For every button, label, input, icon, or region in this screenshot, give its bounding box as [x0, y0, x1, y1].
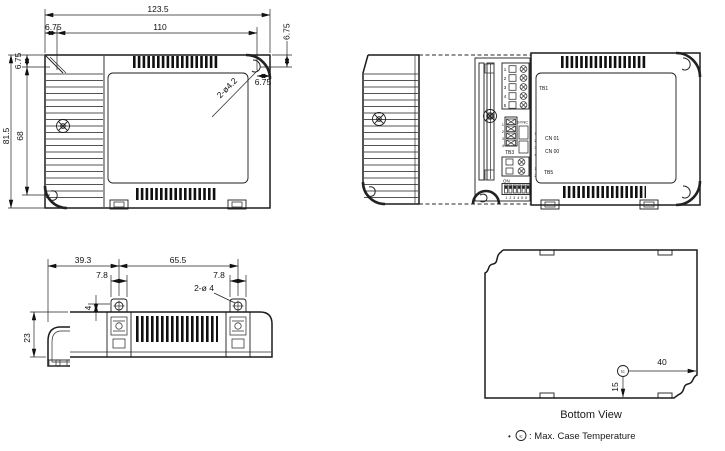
mechanical-drawing-canvas: 123.5 6.75 110 6.75 6.75 6.75	[0, 0, 725, 451]
keyhole-slot-top-right	[676, 53, 700, 77]
dim-label: 6.75	[282, 23, 292, 40]
pin-number: 3	[502, 136, 505, 141]
cn00-label: CN 00	[545, 149, 559, 155]
case-outline	[45, 55, 270, 208]
tc-marker-label: tc	[621, 369, 625, 374]
cn01-label: CN 01	[545, 136, 559, 142]
keyhole-slot-bottom-left	[45, 186, 67, 208]
dim-label: 2-ø 4	[194, 283, 214, 293]
pin-number: 4	[504, 94, 507, 99]
rail	[479, 63, 484, 180]
tb1-label: TB1	[539, 86, 548, 92]
dip-switch: ON 1 2 3 4 5 6	[502, 179, 530, 201]
dimension-tc-right: 40	[629, 357, 696, 371]
dimension-hole-callout: 2-ø 4	[194, 283, 235, 303]
pin-number: 2	[534, 173, 537, 178]
dim-label: 7.8	[96, 270, 108, 280]
screw-icon	[484, 110, 497, 123]
top-view: 123.5 6.75 110 6.75 6.75 6.75	[1, 4, 292, 209]
sync-label: SYNC	[517, 120, 528, 125]
pin-number: 5	[504, 103, 507, 108]
keyhole-slot-bottom-right	[676, 181, 700, 205]
dim-label: 68	[15, 131, 25, 141]
tb5-label: TB5	[544, 170, 553, 176]
connector-tb3: 1 2 3 4 TB3	[502, 117, 517, 156]
bottom-view-panel: tc 40 15 Bottom View	[485, 250, 697, 421]
dim-label: 7.8	[213, 270, 225, 280]
pin-number: 3	[534, 145, 537, 150]
dimension-right-top-offset: 6.75	[260, 23, 292, 67]
pin-number: 1	[534, 166, 537, 171]
side-view: 39.3 65.5 7.8 7.8 4 2-ø 4	[22, 255, 272, 366]
pin-number: 1	[502, 122, 505, 127]
footnote: • tc : Max. Case Temperature	[508, 431, 635, 443]
screw-icon	[373, 113, 386, 126]
connector-sync: SYNC	[517, 120, 528, 154]
bottom-view-caption: Bottom View	[560, 409, 622, 421]
pin-number: 2	[502, 129, 505, 134]
dimension-hole-callout: 2-ø4.2	[212, 70, 258, 117]
pin-number: 4	[534, 152, 537, 157]
case-outline	[531, 53, 700, 205]
dim-label: 123.5	[147, 4, 169, 14]
mounting-bracket-left	[107, 299, 131, 357]
note-text: : Max. Case Temperature	[529, 431, 635, 442]
dim-label: 110	[153, 22, 167, 32]
fin-block-outline	[363, 55, 419, 204]
pin-number: 3	[504, 85, 507, 90]
dim-label: 65.5	[170, 255, 187, 265]
heatsink-fins	[46, 74, 103, 198]
dimension-right-offset: 6.75	[255, 76, 272, 87]
open-cover-view: 1 2 3 4 5 1 2 3 4 TB3 SYNC	[363, 53, 700, 209]
terminal-block-output	[502, 157, 529, 176]
dim-label: 23	[22, 333, 32, 343]
dimension-hole-height: 4	[84, 295, 110, 321]
dip-numbers: 1 2 3 4 5 6	[505, 196, 527, 200]
dim-label: 81.5	[1, 127, 11, 144]
dim-label: 6.75	[45, 22, 62, 32]
dim-label: 40	[657, 357, 667, 367]
terminal-block-tb1: 1 2 3 4 5	[502, 63, 529, 109]
bottom-outline	[485, 250, 697, 398]
dimension-height: 23	[22, 312, 68, 357]
dip-on-label: ON	[503, 179, 510, 184]
pin-number: 2	[504, 76, 507, 81]
dimension-tab-left: 7.8	[96, 270, 127, 297]
mounting-hole-icon	[233, 301, 244, 312]
dim-label: 15	[610, 382, 620, 392]
pin-number: 1	[534, 131, 537, 136]
dim-label: 39.3	[75, 255, 92, 265]
note-bullet: •	[508, 432, 511, 441]
pin-number: 2	[534, 138, 537, 143]
dim-label: 2-ø4.2	[215, 75, 240, 100]
heatsink-fins	[364, 74, 418, 198]
keyhole-slot-bottom	[473, 191, 499, 204]
keyhole-slot	[363, 182, 385, 204]
pin-number: 1	[504, 67, 507, 72]
dimension-tab-right: 7.8	[213, 270, 246, 297]
dim-label: 4	[84, 305, 93, 310]
mounting-hole-icon	[114, 301, 125, 312]
dim-label: 6.75	[255, 77, 272, 87]
dimension-tc-bottom: 15	[610, 377, 623, 397]
technical-drawing: 123.5 6.75 110 6.75 6.75 6.75	[0, 0, 725, 451]
tc-marker-label: tc	[519, 433, 522, 438]
tb3-label: TB3	[505, 150, 514, 156]
pin-number: 4	[502, 143, 505, 148]
mounting-bracket-right	[226, 299, 250, 357]
cover-window	[536, 73, 676, 183]
